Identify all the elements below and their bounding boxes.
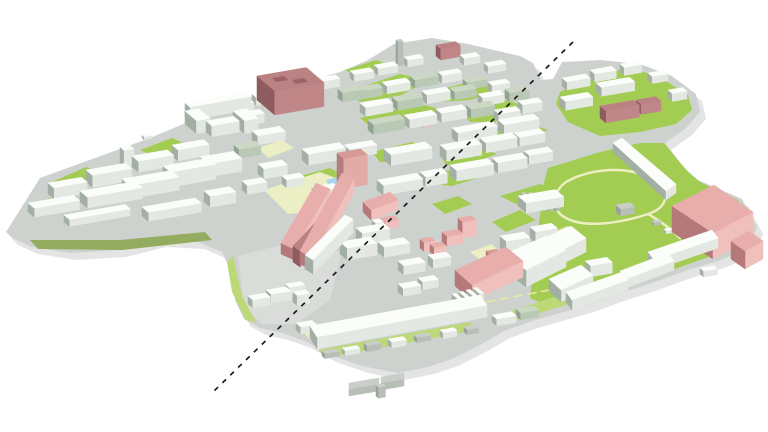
- chimney-wall: [398, 41, 403, 66]
- campus-map-svg: [0, 0, 768, 432]
- campus-3d-map: [0, 0, 768, 432]
- detached-structure-wall: [379, 386, 386, 398]
- chimney-wall: [396, 40, 398, 66]
- building-wall: [463, 220, 477, 238]
